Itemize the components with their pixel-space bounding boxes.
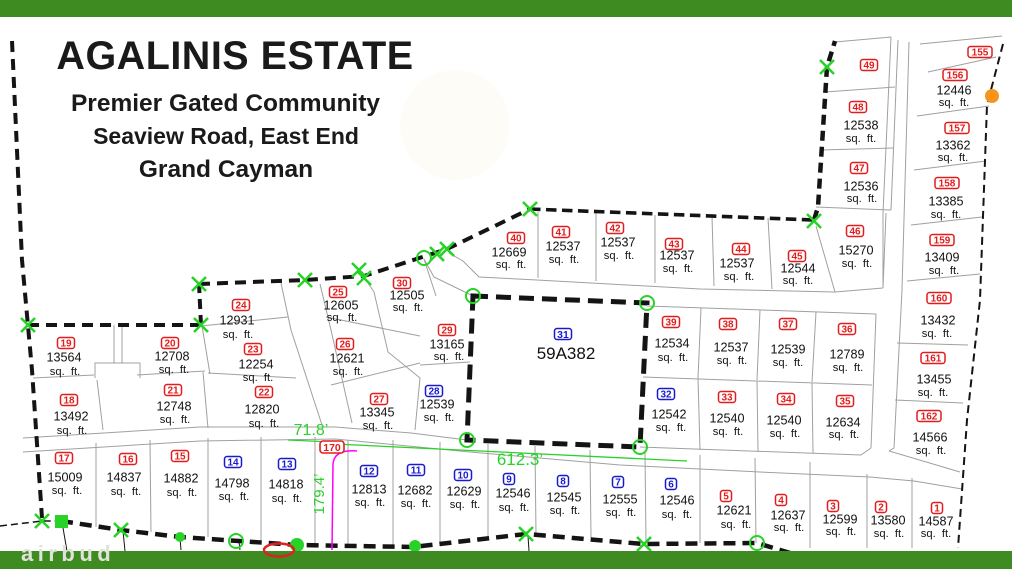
svg-text:sq. ft.: sq. ft. xyxy=(550,505,580,517)
svg-text:sq. ft.: sq. ft. xyxy=(333,366,363,378)
svg-text:12546: 12546 xyxy=(659,493,694,507)
svg-text:sq. ft.: sq. ft. xyxy=(604,250,634,262)
svg-text:sq. ft.: sq. ft. xyxy=(656,422,686,434)
svg-text:17: 17 xyxy=(58,454,70,465)
svg-text:32: 32 xyxy=(660,390,672,401)
svg-text:12621: 12621 xyxy=(329,351,364,365)
svg-text:12446: 12446 xyxy=(936,83,971,97)
svg-text:39: 39 xyxy=(665,318,677,329)
svg-text:sq. ft.: sq. ft. xyxy=(847,193,877,205)
svg-text:sq. ft.: sq. ft. xyxy=(783,275,813,287)
svg-text:12542: 12542 xyxy=(651,407,686,421)
svg-text:sq. ft.: sq. ft. xyxy=(243,372,273,384)
svg-text:15: 15 xyxy=(174,452,186,463)
svg-text:12931: 12931 xyxy=(219,313,254,327)
svg-text:48: 48 xyxy=(852,103,864,114)
svg-text:12539: 12539 xyxy=(419,397,454,411)
svg-text:sq. ft.: sq. ft. xyxy=(606,507,636,519)
svg-text:161: 161 xyxy=(925,354,942,365)
svg-text:13: 13 xyxy=(281,460,293,471)
svg-text:sq. ft.: sq. ft. xyxy=(434,351,464,363)
svg-text:sq. ft.: sq. ft. xyxy=(424,412,454,424)
svg-text:sq. ft.: sq. ft. xyxy=(272,493,302,505)
svg-text:sq. ft.: sq. ft. xyxy=(219,491,249,503)
svg-text:Grand Cayman: Grand Cayman xyxy=(139,156,313,183)
svg-text:12536: 12536 xyxy=(843,179,878,193)
svg-text:12534: 12534 xyxy=(654,336,689,350)
svg-text:12: 12 xyxy=(363,467,375,478)
svg-text:sq. ft.: sq. ft. xyxy=(499,502,529,514)
svg-text:Seaview Road, East End: Seaview Road, East End xyxy=(93,123,359,149)
svg-text:12539: 12539 xyxy=(770,342,805,356)
svg-text:13564: 13564 xyxy=(46,350,81,364)
svg-text:Premier Gated Community: Premier Gated Community xyxy=(71,90,380,117)
svg-text:47: 47 xyxy=(853,164,865,175)
svg-text:sq. ft.: sq. ft. xyxy=(401,498,431,510)
svg-text:14818: 14818 xyxy=(268,477,303,491)
svg-text:20: 20 xyxy=(164,339,176,350)
svg-text:12789: 12789 xyxy=(829,347,864,361)
svg-text:36: 36 xyxy=(841,325,853,336)
svg-text:sq. ft.: sq. ft. xyxy=(921,528,951,540)
svg-text:12555: 12555 xyxy=(602,492,637,506)
svg-text:sq. ft.: sq. ft. xyxy=(773,357,803,369)
svg-text:14: 14 xyxy=(227,458,239,469)
svg-text:sq. ft.: sq. ft. xyxy=(111,486,141,498)
svg-text:38: 38 xyxy=(722,320,734,331)
svg-text:4: 4 xyxy=(778,496,784,507)
svg-text:22: 22 xyxy=(258,388,270,399)
svg-text:27: 27 xyxy=(373,395,385,406)
svg-text:13385: 13385 xyxy=(928,194,963,208)
svg-text:12505: 12505 xyxy=(389,288,424,302)
svg-text:sq. ft.: sq. ft. xyxy=(393,302,423,314)
svg-text:34: 34 xyxy=(780,395,792,406)
svg-text:8: 8 xyxy=(560,477,566,488)
svg-text:sq. ft.: sq. ft. xyxy=(931,209,961,221)
svg-text:12537: 12537 xyxy=(659,248,694,262)
svg-text:12629: 12629 xyxy=(446,484,481,498)
svg-text:49: 49 xyxy=(863,61,875,72)
svg-text:12748: 12748 xyxy=(156,399,191,413)
svg-text:158: 158 xyxy=(939,179,956,190)
svg-text:sq. ft.: sq. ft. xyxy=(826,526,856,538)
svg-text:28: 28 xyxy=(428,387,440,398)
svg-text:sq. ft.: sq. ft. xyxy=(549,254,579,266)
svg-text:44: 44 xyxy=(735,245,747,256)
svg-text:42: 42 xyxy=(609,224,621,235)
svg-text:14798: 14798 xyxy=(214,476,249,490)
svg-text:12634: 12634 xyxy=(825,415,860,429)
svg-text:12544: 12544 xyxy=(780,261,815,275)
svg-text:26: 26 xyxy=(339,340,351,351)
svg-text:12537: 12537 xyxy=(545,239,580,253)
svg-text:12545: 12545 xyxy=(546,490,581,504)
svg-text:12605: 12605 xyxy=(323,298,358,312)
svg-text:sq. ft.: sq. ft. xyxy=(717,355,747,367)
svg-text:46: 46 xyxy=(849,227,861,238)
svg-text:13432: 13432 xyxy=(920,313,955,327)
svg-text:sq. ft.: sq. ft. xyxy=(724,271,754,283)
svg-text:12813: 12813 xyxy=(351,482,386,496)
svg-text:sq. ft.: sq. ft. xyxy=(496,259,526,271)
svg-text:12537: 12537 xyxy=(719,256,754,270)
svg-text:sq. ft.: sq. ft. xyxy=(50,366,80,378)
svg-text:sq. ft.: sq. ft. xyxy=(938,152,968,164)
svg-text:19: 19 xyxy=(60,339,72,350)
svg-text:16: 16 xyxy=(122,455,134,466)
svg-text:170: 170 xyxy=(323,442,341,454)
svg-text:13409: 13409 xyxy=(924,250,959,264)
svg-text:sq. ft.: sq. ft. xyxy=(846,133,876,145)
svg-text:37: 37 xyxy=(782,320,794,331)
svg-text:sq. ft.: sq. ft. xyxy=(918,387,948,399)
svg-text:7: 7 xyxy=(615,478,621,489)
svg-text:12637: 12637 xyxy=(770,508,805,522)
svg-text:sq. ft.: sq. ft. xyxy=(662,509,692,521)
svg-text:71.8’: 71.8’ xyxy=(294,422,329,439)
svg-text:59A382: 59A382 xyxy=(537,344,596,363)
svg-text:23: 23 xyxy=(247,345,259,356)
svg-text:14587: 14587 xyxy=(918,514,953,528)
svg-text:155: 155 xyxy=(972,48,989,59)
svg-text:airbud: airbud xyxy=(21,541,115,566)
svg-text:sq. ft.: sq. ft. xyxy=(57,425,87,437)
svg-text:156: 156 xyxy=(947,71,964,82)
svg-text:sq. ft.: sq. ft. xyxy=(713,426,743,438)
svg-text:sq. ft.: sq. ft. xyxy=(774,522,804,534)
svg-text:179.4’: 179.4’ xyxy=(311,474,328,515)
svg-text:14566: 14566 xyxy=(912,430,947,444)
svg-text:2: 2 xyxy=(878,503,884,514)
svg-text:sq. ft.: sq. ft. xyxy=(159,364,189,376)
svg-text:12682: 12682 xyxy=(397,483,432,497)
svg-text:sq. ft.: sq. ft. xyxy=(770,428,800,440)
svg-text:sq. ft.: sq. ft. xyxy=(355,497,385,509)
svg-text:sq. ft.: sq. ft. xyxy=(658,352,688,364)
svg-text:14882: 14882 xyxy=(163,471,198,485)
svg-text:31: 31 xyxy=(557,329,569,341)
svg-text:13455: 13455 xyxy=(916,372,951,386)
svg-text:sq. ft.: sq. ft. xyxy=(663,263,693,275)
svg-text:10: 10 xyxy=(457,471,469,482)
svg-text:12708: 12708 xyxy=(154,349,189,363)
svg-text:sq. ft.: sq. ft. xyxy=(829,429,859,441)
svg-text:21: 21 xyxy=(167,386,179,397)
svg-text:40: 40 xyxy=(510,234,522,245)
svg-text:sq. ft.: sq. ft. xyxy=(223,329,253,341)
svg-text:sq. ft.: sq. ft. xyxy=(929,265,959,277)
svg-text:13165: 13165 xyxy=(429,337,464,351)
svg-text:13345: 13345 xyxy=(359,405,394,419)
svg-text:160: 160 xyxy=(931,294,948,305)
svg-text:13362: 13362 xyxy=(935,138,970,152)
svg-text:15270: 15270 xyxy=(838,243,873,257)
svg-text:159: 159 xyxy=(934,236,951,247)
svg-text:12537: 12537 xyxy=(713,340,748,354)
svg-text:24: 24 xyxy=(235,301,247,312)
svg-text:13580: 13580 xyxy=(870,513,905,527)
svg-text:612.3’: 612.3’ xyxy=(497,450,543,469)
svg-text:6: 6 xyxy=(668,480,674,491)
svg-text:12540: 12540 xyxy=(766,413,801,427)
svg-text:41: 41 xyxy=(555,228,567,239)
svg-text:11: 11 xyxy=(411,466,422,477)
svg-text:12537: 12537 xyxy=(600,235,635,249)
svg-text:12546: 12546 xyxy=(495,486,530,500)
svg-text:sq. ft.: sq. ft. xyxy=(160,414,190,426)
svg-text:AGALINIS ESTATE: AGALINIS ESTATE xyxy=(56,34,413,78)
svg-text:sq. ft.: sq. ft. xyxy=(721,519,751,531)
svg-text:sq. ft.: sq. ft. xyxy=(874,528,904,540)
svg-text:18: 18 xyxy=(63,396,75,407)
svg-text:sq. ft.: sq. ft. xyxy=(167,487,197,499)
svg-text:14837: 14837 xyxy=(106,470,141,484)
svg-text:157: 157 xyxy=(949,124,966,135)
svg-text:5: 5 xyxy=(723,492,729,503)
svg-text:33: 33 xyxy=(721,393,733,404)
svg-text:sq. ft.: sq. ft. xyxy=(833,362,863,374)
svg-text:12621: 12621 xyxy=(716,503,751,517)
svg-text:sq. ft.: sq. ft. xyxy=(249,418,279,430)
svg-text:sq. ft.: sq. ft. xyxy=(450,499,480,511)
svg-text:sq. ft.: sq. ft. xyxy=(327,312,357,324)
svg-text:sq. ft.: sq. ft. xyxy=(363,420,393,432)
svg-text:35: 35 xyxy=(839,397,851,408)
svg-text:12599: 12599 xyxy=(822,512,857,526)
svg-text:sq. ft.: sq. ft. xyxy=(842,258,872,270)
svg-text:12820: 12820 xyxy=(244,402,279,416)
svg-text:29: 29 xyxy=(441,326,453,337)
svg-text:3: 3 xyxy=(830,502,836,513)
svg-text:15009: 15009 xyxy=(47,470,82,484)
svg-text:sq. ft.: sq. ft. xyxy=(922,328,952,340)
svg-text:12540: 12540 xyxy=(709,411,744,425)
svg-text:1: 1 xyxy=(934,504,940,515)
svg-text:12669: 12669 xyxy=(491,245,526,259)
svg-text:162: 162 xyxy=(921,412,938,423)
svg-text:sq. ft.: sq. ft. xyxy=(939,97,969,109)
svg-text:12254: 12254 xyxy=(238,357,273,371)
svg-text:sq. ft.: sq. ft. xyxy=(52,485,82,497)
svg-text:25: 25 xyxy=(332,288,344,299)
svg-text:13492: 13492 xyxy=(53,409,88,423)
svg-text:sq. ft.: sq. ft. xyxy=(916,445,946,457)
svg-text:12538: 12538 xyxy=(843,118,878,132)
svg-text:9: 9 xyxy=(506,475,512,486)
